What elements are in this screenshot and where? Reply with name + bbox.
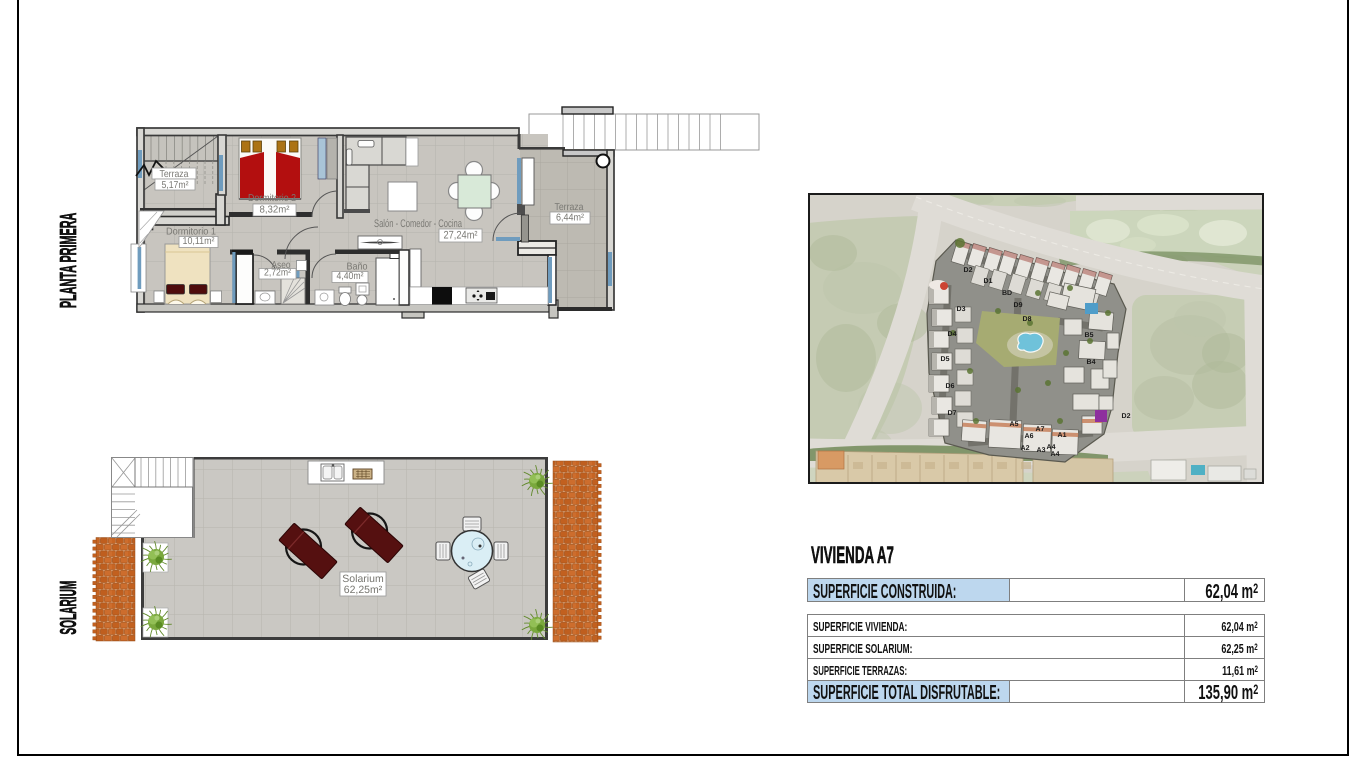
svg-text:2,72m²: 2,72m² <box>264 268 292 279</box>
svg-text:A5: A5 <box>1010 421 1019 428</box>
svg-text:Terraza: Terraza <box>555 202 584 213</box>
svg-text:D9: D9 <box>1014 302 1023 309</box>
svg-text:B4: B4 <box>1087 359 1096 366</box>
svg-text:A1: A1 <box>1058 432 1067 439</box>
svg-text:A6: A6 <box>1025 433 1034 440</box>
svg-text:Terraza: Terraza <box>160 169 189 180</box>
svg-text:Dormitorio 2: Dormitorio 2 <box>248 193 296 204</box>
svg-text:A3: A3 <box>1037 447 1046 454</box>
svg-text:A4: A4 <box>1047 444 1056 451</box>
svg-text:BD: BD <box>1002 290 1012 297</box>
svg-text:D7: D7 <box>948 410 957 417</box>
svg-text:5,17m²: 5,17m² <box>162 180 190 191</box>
svg-text:A4: A4 <box>1051 451 1060 458</box>
svg-text:4,40m²: 4,40m² <box>337 271 365 282</box>
svg-text:10,11m²: 10,11m² <box>183 236 216 247</box>
svg-text:A2: A2 <box>1021 445 1030 452</box>
svg-text:62,25m²: 62,25m² <box>344 584 383 596</box>
svg-text:D8: D8 <box>1023 316 1032 323</box>
svg-text:D3: D3 <box>957 306 966 313</box>
svg-text:D2: D2 <box>964 267 973 274</box>
svg-text:6,44m²: 6,44m² <box>556 213 585 224</box>
svg-text:D5: D5 <box>941 356 950 363</box>
svg-text:27,24m²: 27,24m² <box>444 230 478 242</box>
svg-text:A7: A7 <box>1036 426 1045 433</box>
svg-text:B5: B5 <box>1085 332 1094 339</box>
svg-text:D6: D6 <box>946 383 955 390</box>
svg-text:D1: D1 <box>984 278 993 285</box>
svg-text:D4: D4 <box>948 331 957 338</box>
svg-text:Salón - Comedor - Cocina: Salón - Comedor - Cocina <box>374 218 463 230</box>
svg-text:8,32m²: 8,32m² <box>260 205 291 216</box>
svg-text:D2: D2 <box>1122 413 1131 420</box>
